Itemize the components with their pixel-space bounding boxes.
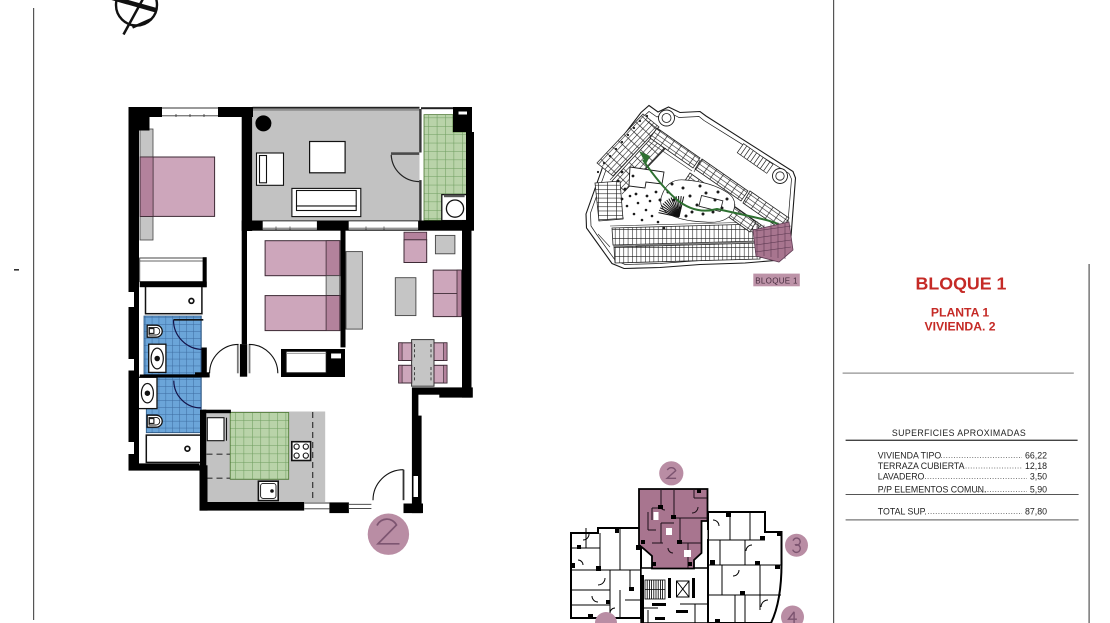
svg-text:LAVADERO: LAVADERO — [878, 471, 925, 481]
svg-text:SUPERFICIES APROXIMADAS: SUPERFICIES APROXIMADAS — [892, 428, 1026, 438]
svg-text:BLOQUE 1: BLOQUE 1 — [755, 276, 798, 285]
svg-text:VIVIENDA TIPO: VIVIENDA TIPO — [878, 451, 942, 461]
svg-text:66,22: 66,22 — [1025, 451, 1047, 461]
svg-text:BLOQUE 1: BLOQUE 1 — [916, 274, 1007, 294]
svg-text:VIVIENDA. 2: VIVIENDA. 2 — [924, 320, 995, 334]
svg-text:87,80: 87,80 — [1025, 506, 1047, 516]
svg-text:12,18: 12,18 — [1025, 461, 1047, 471]
svg-text:PLANTA 1: PLANTA 1 — [931, 306, 989, 320]
svg-text:5,90: 5,90 — [1030, 484, 1047, 494]
svg-text:TOTAL SUP.: TOTAL SUP. — [878, 506, 927, 516]
svg-text:P/P ELEMENTOS COMUN.: P/P ELEMENTOS COMUN. — [878, 484, 987, 494]
svg-text:3,50: 3,50 — [1030, 471, 1047, 481]
svg-text:TERRAZA CUBIERTA: TERRAZA CUBIERTA — [878, 461, 965, 471]
